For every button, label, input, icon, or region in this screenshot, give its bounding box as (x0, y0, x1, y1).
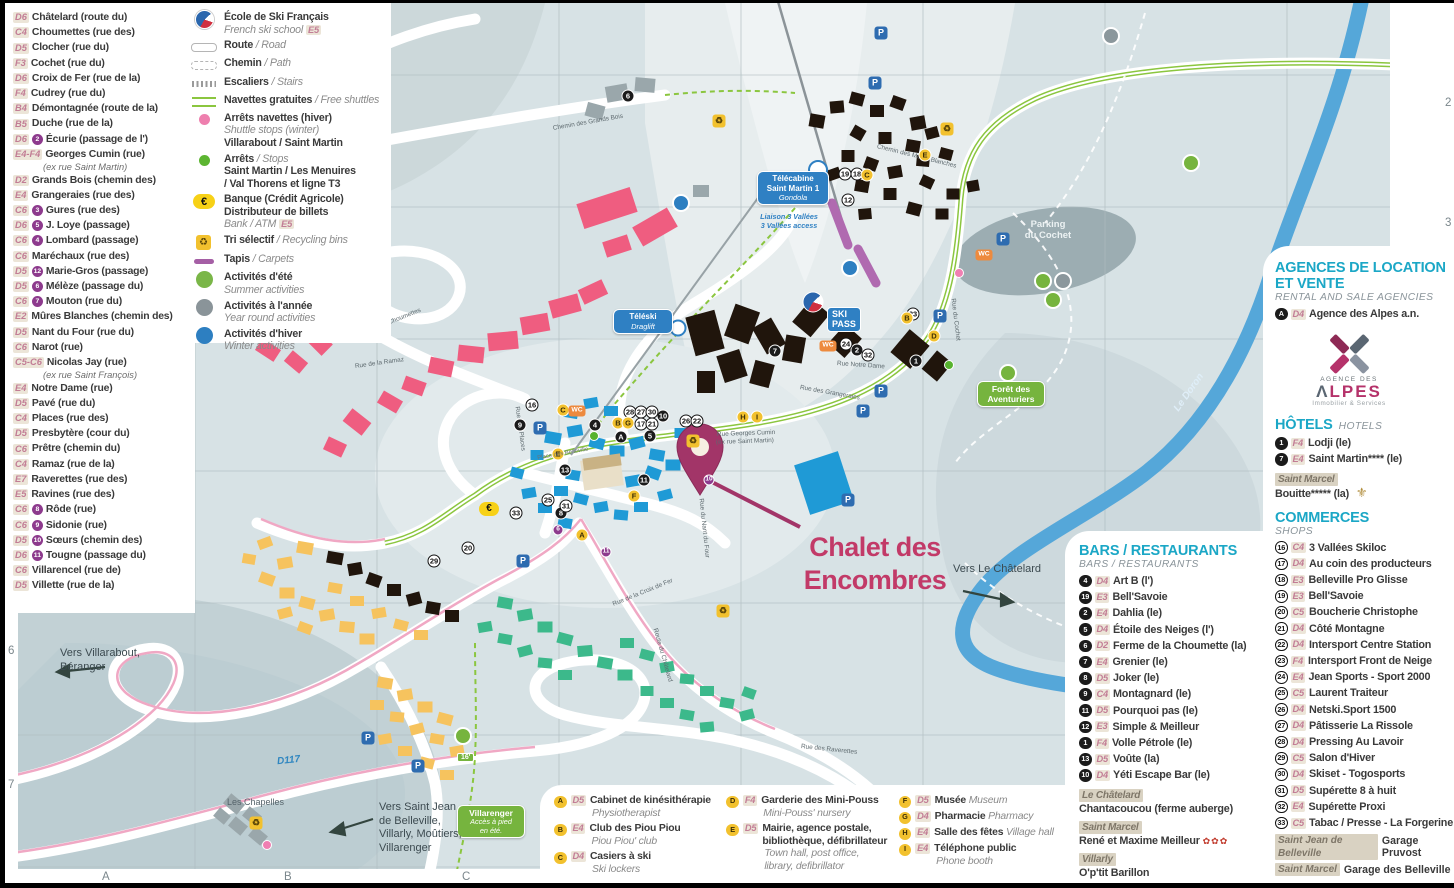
walk-time-tag: 16' (457, 753, 474, 762)
street-entry: D5 Presbytère (cour du) (13, 426, 193, 441)
street-entry: E4-F4 Georges Cumin (rue) (ex rue Saint … (13, 147, 193, 173)
street-name: Villette (rue de la) (32, 578, 114, 593)
draglift-label: Téléski Draglift (613, 309, 673, 334)
grid-ref: C4 (13, 27, 29, 38)
bars-title: BARS / RESTAURANTS (1079, 543, 1257, 559)
grid-ref: D6 (13, 12, 29, 23)
legend-item: École de Ski FrançaisFrench ski schoolE5 (191, 11, 385, 36)
bar-row: 7 E4 Grenier (le) (1079, 654, 1257, 670)
passage-number-badge: 11 (32, 550, 43, 561)
passage-number-badge: 10 (32, 535, 43, 546)
street-entry: C6 3 Gures (rue des) (13, 203, 193, 218)
shop-row: 21 D4 Côté Montagne (1275, 621, 1451, 637)
legend-item: Activités d'hiverWinter activities (191, 328, 385, 353)
grid-ref: F3 (13, 58, 28, 69)
street-entry: D6 11 Tougne (passage du) (13, 548, 193, 563)
hotel-outside-row: Saint Marcel Bouitte***** (la) ⚜ (1275, 472, 1451, 501)
bar-row: 2 E4 Dahlia (le) (1079, 605, 1257, 621)
bank-atm-icon: € (193, 194, 215, 209)
agencies-title: AGENCES DE LOCATION (1275, 260, 1451, 276)
street-name: Choumettes (rue des) (32, 25, 135, 40)
street-entry: D2 Grands Bois (chemin des) (13, 173, 193, 188)
grid-ref: C6 (13, 296, 29, 307)
location-pin-hole (691, 438, 709, 456)
passage-number-badge: 6 (32, 281, 43, 292)
left-margin (5, 611, 18, 888)
agence-des-alpes-logo: AGENCE DES ΛALPESLPES Immobilier & Servi… (1289, 330, 1409, 407)
street-name: Villarencel (rue de) (32, 563, 121, 578)
street-row: D6 2 Écurie (passage de l') (13, 132, 193, 147)
carpet-lift-icon (191, 254, 217, 268)
street-row: C6 8 Rôde (rue) (13, 502, 193, 517)
street-row: D6 Châtelard (route du) (13, 10, 193, 25)
grid-ref: C6 (13, 205, 29, 216)
grid-ref: C6 (13, 251, 29, 262)
bar-row: 10 D4 Yéti Escape Bar (le) (1079, 767, 1257, 783)
legend-item: Route / Road (191, 39, 385, 54)
les-chapelles-label: Les Chapelles (227, 797, 284, 807)
street-name: Clocher (rue du) (32, 40, 109, 55)
street-name: J. Loye (passage) (46, 218, 130, 233)
grid-ref: F4 (13, 88, 28, 99)
bars-restaurants-panel: BARS / RESTAURANTS BARS / RESTAURANTS 4 … (1065, 531, 1263, 888)
street-row: C4 Places (rue des) (13, 411, 193, 426)
service-row: G D4 Pharmacie Pharmacy (899, 811, 1061, 824)
street-entry: D5 Pavé (rue du) (13, 396, 193, 411)
legend-item: Tapis / Carpets (191, 253, 385, 268)
shop-row: 20 C5 Boucherie Christophe (1275, 604, 1451, 620)
street-name: Cudrey (rue du) (31, 86, 105, 101)
street-entry: C6 9 Sidonie (rue) (13, 518, 193, 533)
street-name: Ramaz (rue de la) (32, 457, 115, 472)
street-row: E4-F4 Georges Cumin (rue) (13, 147, 193, 162)
legend-item: Navettes gratuites / Free shuttles (191, 94, 385, 109)
street-name: Châtelard (route du) (32, 10, 127, 25)
passage-number-badge: 7 (32, 296, 43, 307)
grid-ref: D5 (13, 43, 29, 54)
bar-row: 11 D5 Pourquoi pas (le) (1079, 703, 1257, 719)
bar-row: 8 D5 Joker (le) (1079, 670, 1257, 686)
street-entry: C4 Places (rue des) (13, 411, 193, 426)
street-name: Mouton (rue du) (46, 294, 122, 309)
street-row: D5 12 Marie-Gros (passage) (13, 264, 193, 279)
street-name: Cochet (rue du) (31, 56, 105, 71)
legend-item: Chemin / Path (191, 57, 385, 72)
street-row: F4 Cudrey (rue du) (13, 86, 193, 101)
street-name: Rôde (rue) (46, 502, 96, 517)
bar-row: 12 E3 Simple & Meilleur (1079, 719, 1257, 735)
grid-ref: E2 (13, 311, 28, 322)
bar-row: 19 E3 Bell'Savoie (1079, 589, 1257, 605)
grid-ref: E7 (13, 474, 28, 485)
shop-row: 33 C5 Tabac / Presse - La Forgerine (1275, 815, 1451, 831)
street-entry: D5 12 Marie-Gros (passage) (13, 264, 193, 279)
legend-item: €Banque (Crédit Agricole)Distributeur de… (191, 193, 385, 231)
street-name: Mélèze (passage du) (46, 279, 143, 294)
service-row: C D4 Casiers à ski Ski lockers (554, 851, 716, 876)
vers-villarabout-label: Vers Villarabout,Béranger (60, 647, 140, 674)
grid-ref: C4 (13, 413, 29, 424)
services-panel: A D5 Cabinet de kinésithérapie Physiothe… (540, 785, 1065, 888)
shop-row: 22 D4 Intersport Centre Station (1275, 637, 1451, 653)
shop-outside-row: Saint Jean de Belleville Garage Pruvost (1275, 834, 1451, 860)
street-name: Maréchaux (rue des) (32, 249, 129, 264)
service-row: E D5 Mairie, agence postale, bibliothèqu… (726, 823, 888, 873)
service-row: I E4 Téléphone public Phone booth (899, 843, 1061, 868)
street-entry: C4 Ramaz (rue de la) (13, 457, 193, 472)
shop-row: 32 E4 Supérette Proxi (1275, 799, 1451, 815)
bar-outside-row: Villarly O'p'tit Barillon (1079, 852, 1257, 880)
passage-number-badge: 9 (32, 520, 43, 531)
street-entry: C6 Villarencel (rue de) (13, 563, 193, 578)
street-row: C6 4 Lombard (passage) (13, 233, 193, 248)
bar-row: 6 D2 Ferme de la Choumette (la) (1079, 638, 1257, 654)
street-row: C6 7 Mouton (rue du) (13, 294, 193, 309)
resort-map: Télécabine Saint Martin 1 Gondola Liaiso… (0, 0, 1454, 888)
shops-title: COMMERCES (1275, 510, 1369, 526)
street-alt-name: (ex rue Saint Martin) (13, 162, 193, 173)
street-entry: C6 4 Lombard (passage) (13, 233, 193, 248)
grid-ref: D5 (13, 266, 29, 277)
street-row: E4 Notre Dame (rue) (13, 381, 193, 396)
street-row: C6 9 Sidonie (rue) (13, 518, 193, 533)
grid-ref: C6 (13, 342, 29, 353)
street-row: F3 Cochet (rue du) (13, 56, 193, 71)
street-name: Presbytère (cour du) (32, 426, 130, 441)
shop-row: 23 F4 Intersport Front de Neige (1275, 653, 1451, 669)
path-icon (191, 58, 217, 72)
street-row: D6 Croix de Fer (rue de la) (13, 71, 193, 86)
street-entry: E2 Mûres Blanches (chemin des) (13, 309, 193, 324)
street-row: C6 Maréchaux (rue des) (13, 249, 193, 264)
street-alt-name: (ex rue Saint François) (13, 370, 193, 381)
street-name: Mûres Blanches (chemin des) (31, 309, 172, 324)
grid-ref: D6 (13, 550, 29, 561)
service-row: D F4 Garderie des Mini-Pouss Mini-Pouss'… (726, 795, 888, 820)
street-entry: C6 Narot (rue) (13, 340, 193, 355)
shop-row: 24 E4 Jean Sports - Sport 2000 (1275, 669, 1451, 685)
street-name: Gures (rue des) (46, 203, 120, 218)
street-entry: E4 Grangeraies (rue des) (13, 188, 193, 203)
legend-item: Arrêts navettes (hiver)Shuttle stops (wi… (191, 112, 385, 150)
street-entry: D6 Châtelard (route du) (13, 10, 193, 25)
street-row: C4 Ramaz (rue de la) (13, 457, 193, 472)
street-entry: F3 Cochet (rue du) (13, 56, 193, 71)
street-entry: D5 Villette (rue de la) (13, 578, 193, 593)
street-name: Tougne (passage du) (46, 548, 146, 563)
hotel-row: 7 E4 Saint Martin**** (le) (1275, 451, 1451, 467)
street-name: Lombard (passage) (46, 233, 138, 248)
street-row: C6 Villarencel (rue de) (13, 563, 193, 578)
parking-cochet-label: Parkingdu Cochet (1013, 219, 1083, 241)
winter-activities-icon (191, 329, 217, 343)
legend-item: Activités d'étéSummer activities (191, 271, 385, 296)
legend-item: Escaliers / Stairs (191, 76, 385, 91)
street-name: Nicolas Jay (rue) (47, 355, 127, 370)
grid-ref: C4 (13, 459, 29, 470)
shop-row: 19 E3 Bell'Savoie (1275, 588, 1451, 604)
road-icon (191, 40, 217, 54)
street-name: Sœurs (chemin des) (46, 533, 142, 548)
service-row: B E4 Club des Piou Piou Piou Piou' club (554, 823, 716, 848)
street-row: C6 Narot (rue) (13, 340, 193, 355)
directory-panel: AGENCES DE LOCATION ET VENTE RENTAL AND … (1263, 246, 1454, 888)
grid-ref: C6 (13, 520, 29, 531)
ski-pass-label: SKIPASS (827, 307, 861, 332)
bar-row: 13 D5 Voûte (la) (1079, 751, 1257, 767)
street-name: Démontagnée (route de la) (32, 101, 158, 116)
street-row: D5 Villette (rue de la) (13, 578, 193, 593)
bar-outside-row: Saint Marcel René et Maxime Meilleur ✿✿✿ (1079, 820, 1257, 848)
street-entry: D5 6 Mélèze (passage du) (13, 279, 193, 294)
street-entry: D5 Clocher (rue du) (13, 40, 193, 55)
passage-number-badge: 2 (32, 134, 43, 145)
shop-row: 29 C5 Salon d'Hiver (1275, 750, 1451, 766)
vers-saint-jean-label: Vers Saint Jeande Belleville, Villarly, … (379, 801, 462, 855)
grid-ref: D5 (13, 281, 29, 292)
grid-ref: E4 (13, 383, 28, 394)
passage-number-badge: 8 (32, 504, 43, 515)
bar-row: 9 C4 Montagnard (le) (1079, 686, 1257, 702)
street-name: Raverettes (rue des) (31, 472, 127, 487)
chef-stars: ✿✿✿ (1203, 836, 1229, 846)
street-entry: C4 Choumettes (rue des) (13, 25, 193, 40)
year-round-activities-icon (191, 301, 217, 315)
agency-row: A D4 Agence des Alpes a.n. (1275, 306, 1451, 322)
street-entry: C6 Prêtre (chemin du) (13, 441, 193, 456)
grid-ref: D5 (13, 580, 29, 591)
agency-marker: A (1275, 308, 1288, 321)
street-row: B4 Démontagnée (route de la) (13, 101, 193, 116)
street-row: D5 Presbytère (cour du) (13, 426, 193, 441)
grid-ref: D2 (13, 175, 29, 186)
bar-row: 4 D4 Art B (l') (1079, 573, 1257, 589)
passage-number-badge: 3 (32, 205, 43, 216)
street-row: C5-C6 Nicolas Jay (rue) (13, 355, 193, 370)
street-entry: C6 7 Mouton (rue du) (13, 294, 193, 309)
street-row: D5 10 Sœurs (chemin des) (13, 533, 193, 548)
grid-ref: E4 (13, 190, 28, 201)
street-name: Croix de Fer (rue de la) (32, 71, 140, 86)
chalet-des-encombres-callout: Chalet desEncombres (775, 531, 975, 597)
street-row: D5 Clocher (rue du) (13, 40, 193, 55)
shop-row: 16 C4 3 Vallées Skiloc (1275, 540, 1451, 556)
shop-outside-row: Saint Marcel Garage des Belleville (1275, 863, 1451, 876)
street-row: C4 Choumettes (rue des) (13, 25, 193, 40)
bottom-margin (5, 869, 540, 888)
street-entry: D5 Nant du Four (rue du) (13, 325, 193, 340)
street-row: E4 Grangeraies (rue des) (13, 188, 193, 203)
street-entry: B5 Duche (rue de la) (13, 116, 193, 131)
grid-ref: E4-F4 (13, 149, 42, 160)
liaison-label: Liaison 3 Vallées3 Vallées access (757, 213, 821, 230)
street-name: Duche (rue de la) (32, 116, 113, 131)
shop-row: 28 D4 Pressing Au Lavoir (1275, 734, 1451, 750)
street-name: Places (rue des) (32, 411, 109, 426)
street-name: Prêtre (chemin du) (32, 441, 120, 456)
grid-ref: C6 (13, 504, 29, 515)
passage-number-badge: 4 (32, 235, 43, 246)
free-shuttle-icon (191, 95, 217, 109)
street-name: Nant du Four (rue du) (32, 325, 134, 340)
grid-ref: D6 (13, 73, 29, 84)
shop-row: 27 D4 Pâtisserie La Rissole (1275, 718, 1451, 734)
passage-number-badge: 12 (32, 266, 43, 277)
grid-ref: D5 (13, 428, 29, 439)
street-entry: B4 Démontagnée (route de la) (13, 101, 193, 116)
street-entry: D5 10 Sœurs (chemin des) (13, 533, 193, 548)
street-entry: C6 8 Rôde (rue) (13, 502, 193, 517)
grid-ref: D6 (13, 220, 29, 231)
street-row: E2 Mûres Blanches (chemin des) (13, 309, 193, 324)
service-row: A D5 Cabinet de kinésithérapie Physiothe… (554, 795, 716, 820)
street-name: Ravines (rue des) (31, 487, 114, 502)
street-row: D5 Nant du Four (rue du) (13, 325, 193, 340)
street-entry: D6 Croix de Fer (rue de la) (13, 71, 193, 86)
recycling-icon: ♻ (196, 235, 211, 250)
street-row: B5 Duche (rue de la) (13, 116, 193, 131)
shop-row: 30 D4 Skiset - Togosports (1275, 766, 1451, 782)
street-row: D5 6 Mélèze (passage du) (13, 279, 193, 294)
street-row: D6 11 Tougne (passage du) (13, 548, 193, 563)
grid-ref: B4 (13, 103, 29, 114)
passage-number-badge: 5 (32, 220, 43, 231)
bar-row: 1 F4 Volle Pétrole (le) (1079, 735, 1257, 751)
street-entry: C5-C6 Nicolas Jay (rue) (ex rue Saint Fr… (13, 355, 193, 381)
grid-ref: D5 (13, 398, 29, 409)
grid-ref: C6 (13, 235, 29, 246)
agencies-subtitle: RENTAL AND SALE AGENCIES (1275, 292, 1451, 303)
street-row: D6 5 J. Loye (passage) (13, 218, 193, 233)
grid-ref: C5-C6 (13, 357, 44, 368)
hotels-title: HÔTELS (1275, 417, 1333, 433)
grid-ref: B5 (13, 119, 29, 130)
street-name: Grangeraies (rue des) (31, 188, 134, 203)
legend-item: ♻Tri sélectif / Recycling bins (191, 234, 385, 250)
street-entry: E5 Ravines (rue des) (13, 487, 193, 502)
summer-activities-icon (191, 272, 217, 286)
villarenger-label: Villarenger Accès à pied en été. (457, 805, 525, 838)
street-row: D2 Grands Bois (chemin des) (13, 173, 193, 188)
shop-row: 18 E3 Belleville Pro Glisse (1275, 572, 1451, 588)
street-row: E7 Raverettes (rue des) (13, 472, 193, 487)
street-row: C6 3 Gures (rue des) (13, 203, 193, 218)
adventure-forest-label: Forêt desAventuriers (977, 381, 1045, 407)
street-entry: E4 Notre Dame (rue) (13, 381, 193, 396)
grid-ref: E5 (13, 489, 28, 500)
grid-ref: C6 (13, 444, 29, 455)
bar-outside-row: Le Châtelard Chantacoucou (ferme auberge… (1079, 788, 1257, 816)
bouitte-logo-icon: ⚜ (1356, 485, 1367, 500)
alpes-pinwheel-icon (1326, 330, 1372, 374)
street-entry: D6 5 J. Loye (passage) (13, 218, 193, 233)
street-entry: D6 2 Écurie (passage de l') (13, 132, 193, 147)
grid-ref: D5 (13, 535, 29, 546)
bar-row: 5 D4 Étoile des Neiges (l') (1079, 622, 1257, 638)
winter-shuttle-stop-icon (191, 113, 217, 127)
street-name: Pavé (rue du) (32, 396, 95, 411)
street-index-panel: D6 Châtelard (route du) C4 Choumettes (r… (5, 3, 195, 613)
grid-ref: D5 (13, 327, 29, 338)
street-row: D5 Pavé (rue du) (13, 396, 193, 411)
shop-row: 26 D4 Netski.Sport 1500 (1275, 702, 1451, 718)
street-row: C6 Prêtre (chemin du) (13, 441, 193, 456)
grid-ref: C6 (13, 565, 29, 576)
street-row: E5 Ravines (rue des) (13, 487, 193, 502)
shop-row: 31 D5 Supérette 8 à huit (1275, 783, 1451, 799)
street-entry: F4 Cudrey (rue du) (13, 86, 193, 101)
legend-item: Arrêts / StopsSaint Martin / Les Menuire… (191, 153, 385, 191)
gondola-label: Télécabine Saint Martin 1 Gondola (757, 171, 829, 205)
street-entry: E7 Raverettes (rue des) (13, 472, 193, 487)
street-name: Sidonie (rue) (46, 518, 107, 533)
street-entry: C6 Maréchaux (rue des) (13, 249, 193, 264)
legend-item: Activités à l'annéeYear round activities (191, 300, 385, 325)
street-name: Georges Cumin (rue) (45, 147, 145, 162)
legend-panel: École de Ski FrançaisFrench ski schoolE5… (183, 3, 391, 343)
street-name: Marie-Gros (passage) (46, 264, 148, 279)
service-row: F D5 Musée Museum (899, 795, 1061, 808)
shop-row: 17 D4 Au coin des producteurs (1275, 556, 1451, 572)
street-name: Écurie (passage de l') (46, 132, 148, 147)
esf-logo-icon (191, 12, 217, 26)
service-row: H E4 Salle des fêtes Village hall (899, 827, 1061, 840)
shop-row: 25 C5 Laurent Traiteur (1275, 685, 1451, 701)
street-name: Grands Bois (chemin des) (32, 173, 156, 188)
grid-ref: D6 (13, 134, 29, 145)
street-name: Notre Dame (rue) (31, 381, 112, 396)
street-name: Narot (rue) (32, 340, 83, 355)
stairs-icon (191, 77, 217, 91)
bus-stop-icon (191, 154, 217, 168)
hotel-row: 1 F4 Lodji (le) (1275, 435, 1451, 451)
